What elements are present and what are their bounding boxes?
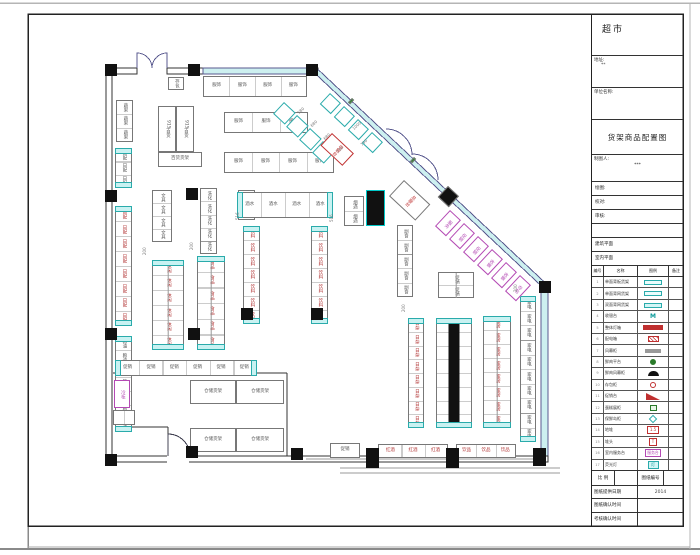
date-value (638, 513, 683, 526)
date-row-review: 考核确认时间 (592, 513, 683, 526)
shelf-label: 服饰 (263, 84, 272, 89)
shelf-label: 酒水 (269, 203, 278, 208)
bottom-row: 饮品饮品饮品 (456, 444, 516, 458)
wall-run-right: 家电家电家电家电家电家电家电家电家电家电 (520, 296, 536, 442)
legend-row: 12蛋糕展柜 (592, 402, 683, 413)
date-label: 图纸提供日期 (592, 486, 638, 498)
structural-column (446, 448, 459, 468)
shelf-endcap (197, 256, 224, 262)
shelf-label: 副食 (403, 229, 408, 238)
gondola-915: 915百货 (158, 106, 176, 152)
small-unit (113, 410, 135, 425)
legend-row: 5整体灯箱 (592, 323, 683, 334)
org-field: 单位名称: (592, 88, 683, 120)
shelf-label: 日杂 (414, 375, 419, 384)
legend-header: 编号 名称 图例 备注 (592, 266, 683, 277)
shelf-label: 文具 (160, 205, 165, 214)
shelf-label: 服饰 (234, 120, 243, 125)
legend-row: 2单面背网货架 (592, 288, 683, 299)
gondola: 百货货架 (158, 152, 202, 167)
shelf-label: 日杂 (414, 362, 419, 371)
back-row: 促销促销促销促销促销促销 (115, 360, 257, 376)
shelf-endcap (115, 148, 131, 154)
shelf-label: 饮品 (501, 449, 510, 454)
date-value (638, 499, 683, 511)
legend-row: 16室内服务台服务台 (592, 448, 683, 459)
legend-row: 10存包柜 (592, 380, 683, 391)
shelf-label: 日配 (121, 298, 126, 307)
scale-row: 比 例 图纸编号 (592, 471, 683, 486)
shelf-label: 家电 (526, 400, 531, 409)
shelf-label: 仓储货架 (251, 438, 269, 443)
dimension-text: 516 (236, 212, 240, 220)
shelf-label: 家电 (526, 386, 531, 395)
shelf-endcap (152, 344, 183, 350)
row-interior-plan: 室内平面 (592, 252, 683, 266)
structural-column (186, 446, 198, 458)
shelf-label: 冷柜 (120, 390, 125, 399)
shelf-label: 促销 (146, 366, 155, 371)
shelf-label: 饮料 (317, 257, 322, 266)
row-blank (592, 224, 683, 238)
structural-column (188, 328, 200, 340)
shelf-label: 日杂 (414, 348, 419, 357)
shelf-label: 饮料 (317, 243, 322, 252)
shelf-label: 促销 (457, 231, 467, 241)
address-label: 地址: (594, 57, 605, 63)
shelf-label: 日配 (121, 163, 126, 172)
shelf-label: 总服台 (403, 194, 416, 207)
shelf-label: 饮料 (249, 243, 254, 252)
shelf-label: 洗化 (206, 242, 211, 251)
date-row-provided: 图纸提供日期 2014 (592, 486, 683, 499)
shelf-endcap (115, 320, 131, 326)
shelf-label: 洗化 (206, 229, 211, 238)
legend-row: 9鲜肉风幕柜 (592, 368, 683, 379)
promo-table: 促销促销 (438, 272, 474, 298)
shelf-label: 促销 (341, 448, 350, 453)
s-circr-symbol (650, 382, 656, 388)
shelf-divider (168, 261, 169, 350)
shelf-endcap (520, 436, 535, 442)
s-box15-symbol: 1.5 (647, 426, 658, 434)
service-desk: 总服台 (389, 180, 430, 221)
shelf-label: 酒水 (245, 203, 254, 208)
shelf-label: 服饰 (212, 84, 221, 89)
shelf-label: 洗化 (206, 216, 211, 225)
s-boxx-symbol (648, 336, 659, 342)
shelf-label: 日配 (121, 225, 126, 234)
cold-cabinet: 冷柜 (114, 380, 130, 408)
shelf-label: 存包 (174, 79, 179, 88)
shelf-label: 服饰 (288, 160, 297, 165)
shelf-label: 酒水 (316, 203, 325, 208)
org-label: 单位名称: (594, 89, 614, 95)
structural-column (311, 308, 323, 320)
legend-col-symbol: 图例 (638, 266, 669, 276)
drafter-value: *** (595, 163, 680, 168)
shelf-endcap (251, 360, 257, 375)
gondola: 文具文具文具文具 (152, 190, 172, 242)
shelf-label: 服饰 (289, 84, 298, 89)
wall-run: 日配日配日配日配日配日配日配日配 (115, 206, 132, 326)
shelf-label: 酒水 (292, 203, 301, 208)
shelf-label: 蔬果 (122, 103, 127, 112)
shelf-label: 促销 (216, 366, 225, 371)
s-boxm-symbol: 服务台 (645, 449, 661, 457)
drafter-field: 制图人: *** (592, 155, 683, 182)
shelf-label: 仓储货架 (251, 390, 269, 395)
shelf-endcap (483, 316, 510, 322)
column-diagonal (438, 186, 459, 207)
produce-rack: 蔬果蔬果蔬果 (116, 100, 133, 142)
shelf-label: 文具 (160, 230, 165, 239)
shelf-label: 家电 (526, 314, 531, 323)
structural-column (241, 308, 253, 320)
shelf-label: 红酒 (386, 449, 395, 454)
storage-rack: 仓储货架 (236, 380, 284, 404)
s-rect-symbol (644, 291, 662, 296)
structural-column (291, 448, 303, 460)
shelf-divider (456, 273, 457, 298)
door-sensor (348, 98, 354, 104)
shelf-label: 烟酒 (352, 214, 357, 223)
shelf-label: 日配 (121, 239, 126, 248)
gondola: 副食副食副食副食副食 (397, 225, 413, 297)
shelf-label: 饮料 (249, 270, 254, 279)
shelf-endcap (243, 226, 259, 232)
shelf-endcap (408, 422, 423, 428)
s-circg-symbol (650, 359, 656, 365)
legend-row: 17荧光灯灯 (592, 460, 683, 470)
gondola-column-run: 五金五金五金五金五金五金五金五金 (436, 318, 472, 428)
shelf-endcap (436, 422, 471, 428)
date-row-confirmed: 图纸确认时间 (592, 499, 683, 512)
s-boxt-symbol: T (649, 438, 656, 446)
shelf-label: 915百货 (165, 120, 170, 138)
shelf-label: 洗化 (206, 191, 211, 200)
legend-row: 1单面背板货架 (592, 277, 683, 288)
s-bargray-symbol (645, 349, 661, 353)
shelf-endcap (115, 426, 131, 432)
shelf-endcap (436, 318, 471, 324)
address-value: ** (601, 63, 606, 68)
shelf-label: 促销 (471, 244, 481, 254)
shelf-label: 饮料 (249, 284, 254, 293)
shelf-label: 家电 (526, 328, 531, 337)
shelf-endcap (115, 206, 131, 212)
drawing-title: 货架商品配置图 (592, 120, 683, 155)
legend-col-name: 名称 (604, 266, 638, 276)
s-boxg-symbol (650, 405, 657, 411)
shelf-label: 副食 (403, 257, 408, 266)
legend-row: 13保鲜岛柜 (592, 414, 683, 425)
structural-column (105, 190, 117, 202)
s-m-symbol: M (650, 313, 656, 320)
structural-column (306, 64, 318, 76)
apparel-wall-row: 服饰服饰服饰服饰 (203, 76, 307, 97)
s-rect-symbol (644, 280, 662, 285)
shelf-label: 服饰 (261, 160, 270, 165)
shelf-label: 洗化 (206, 204, 211, 213)
gondola-915: 915百货 (176, 106, 194, 152)
shelf-label: 促销 (123, 366, 132, 371)
shelf-label: 收银 (499, 270, 509, 280)
structural-column (186, 188, 198, 200)
shelf-label: 日配 (121, 254, 126, 263)
row-check: 校对: (592, 196, 683, 210)
dimension-text: 200 (514, 284, 518, 292)
shelf-label: 红酒 (431, 449, 440, 454)
shelf-label: 饮品 (481, 449, 490, 454)
shelf-label: 饮料 (317, 284, 322, 293)
gondola: 洗化洗化洗化洗化洗化 (200, 188, 217, 254)
row-arch-plan: 建筑平面 (592, 238, 683, 252)
legend-col-no: 编号 (592, 266, 604, 276)
drawing-sheet: 存包服饰服饰服饰服饰蔬果蔬果蔬果915百货915百货百货货架服饰服饰服饰服饰服饰… (0, 0, 700, 555)
date-label: 图纸确认时间 (592, 499, 638, 511)
storage-rack: 仓储货架 (236, 428, 284, 452)
door-sensor (410, 157, 416, 163)
bottom-unit: 促销 (330, 443, 360, 458)
shelf-endcap (152, 260, 183, 266)
structural-column (366, 448, 379, 468)
shelf-label: 蔬果 (122, 116, 127, 125)
shelf-endcap (115, 182, 131, 188)
shelf-label: 服饰 (234, 160, 243, 165)
shelf-label: 百货货架 (171, 157, 189, 162)
sheet-no-value (664, 471, 683, 485)
s-barred-symbol (643, 325, 663, 330)
legend-row: 15堆头T (592, 437, 683, 448)
tobacco-case: 烟酒烟酒 (344, 196, 364, 226)
structural-column (188, 64, 200, 76)
legend-row: 3双面背网货架 (592, 300, 683, 311)
s-wedge-symbol (646, 393, 660, 400)
legend-row: 8鲜肉平台 (592, 357, 683, 368)
shelf-label: 副食 (403, 243, 408, 252)
dimension-text: 200 (402, 304, 406, 312)
shelf-label: 蔬果 (122, 130, 127, 139)
scale-label: 比 例 (592, 471, 615, 485)
store-type-title: 超市 (592, 14, 683, 56)
shelf-endcap (197, 344, 224, 350)
title-block: 超市 地址: ** 单位名称: 货架商品配置图 制图人: *** 绘图: 校对:… (591, 14, 683, 526)
shelf-label: 促销 (240, 366, 249, 371)
shelf-label: 红酒 (408, 449, 417, 454)
shelf-label: 收银 (485, 257, 495, 267)
shelf-endcap (483, 422, 510, 428)
shelf-endcap (311, 226, 327, 232)
shelf-endcap (520, 296, 535, 302)
shelf-endcap (408, 318, 423, 324)
structural-column (533, 448, 546, 466)
legend-row: 6配电箱 (592, 334, 683, 345)
shelf-label: 日配 (121, 284, 126, 293)
legend-col-note: 备注 (669, 266, 683, 276)
dimension-text: 200 (190, 242, 194, 250)
legend-row: 7风幕柜 (592, 345, 683, 356)
bottom-row: 红酒红酒红酒 (378, 444, 448, 458)
structural-column (105, 64, 117, 76)
shelf-label: 促销 (170, 366, 179, 371)
gondola-double: 家居家居家居家居家居家居家居家居 (483, 316, 511, 428)
shelf-label: 日杂 (414, 389, 419, 398)
shelf-label: 仓储货架 (204, 390, 222, 395)
gondola: 日杂日杂日杂日杂日杂日杂日杂日杂 (408, 318, 424, 428)
gondola-double: 食品食品食品食品食品食品 (197, 256, 225, 350)
shelf-label: 仓储货架 (204, 438, 222, 443)
s-fan-symbol (648, 371, 659, 377)
shelf-label: 家电 (526, 357, 531, 366)
dimension-text: 516 (330, 214, 334, 222)
gondola-double: 休闲休闲休闲休闲休闲休闲 (152, 260, 184, 350)
dimension-text: 680 (310, 120, 318, 128)
column-strip (449, 319, 460, 428)
structural-column (539, 281, 551, 293)
legend-row: 14地堆1.5 (592, 425, 683, 436)
shelf-label: 副食 (403, 285, 408, 294)
shelf-label: 家电 (526, 415, 531, 424)
shelf-label: 饮品 (462, 449, 471, 454)
legend-table: 1单面背板货架2单面背网货架3双面背网货架4收银台M5整体灯箱6配电箱7风幕柜8… (592, 277, 683, 471)
shelf-divider (497, 317, 498, 428)
shelf-label: 日配 (121, 269, 126, 278)
address-field: 地址: ** (592, 56, 683, 88)
shelf-endcap (115, 336, 131, 342)
shelf-label: 文具 (160, 218, 165, 227)
shelf-label: 烟酒 (352, 200, 357, 209)
shelf-label: 日杂 (414, 402, 419, 411)
shelf-label: 日杂 (414, 335, 419, 344)
shelf-endcap (115, 360, 121, 375)
shelf-label: 915百货 (183, 120, 188, 138)
row-audit: 审核: (592, 210, 683, 224)
shelf-label: 饮料 (249, 257, 254, 266)
shelf-label: 饮料 (317, 298, 322, 307)
structural-column (105, 454, 117, 466)
shelf-label: 家电 (526, 372, 531, 381)
storage-rack: 仓储货架 (190, 380, 236, 404)
s-pill-symbol: 灯 (648, 461, 659, 469)
sheet-no-label: 图纸编号 (638, 471, 664, 485)
row-draw: 绘图: (592, 182, 683, 196)
date-value: 2014 (638, 486, 683, 498)
shelf-label: 家电 (526, 343, 531, 352)
shelf-label: 促销 (193, 366, 202, 371)
shelf-label: 副食 (403, 271, 408, 280)
drafter-label: 制图人: (594, 156, 609, 162)
shelf-label: 文具 (160, 193, 165, 202)
gondola-top-bar: 酒水酒水酒水酒水 (237, 192, 333, 218)
shelf-label: 服饰 (238, 84, 247, 89)
dimension-text: 200 (143, 247, 147, 255)
locker-unit: 存包 (168, 77, 184, 90)
shelf-label: 饮料 (317, 270, 322, 279)
wall-run: 日配日配日配 (115, 148, 132, 188)
freezer-island (366, 190, 385, 226)
date-label: 考核确认时间 (592, 513, 638, 526)
legend-row: 4收银台M (592, 311, 683, 322)
s-rect2-symbol (644, 303, 662, 308)
shelf-label: 服饰 (261, 120, 270, 125)
scale-value (615, 471, 638, 485)
legend-row: 11促销台 (592, 391, 683, 402)
s-diam-symbol (649, 415, 657, 423)
shelf-label: 服务 (443, 218, 453, 228)
structural-column (105, 328, 117, 340)
shelf-label: 饮料 (249, 298, 254, 307)
shelf-divider (211, 257, 212, 350)
